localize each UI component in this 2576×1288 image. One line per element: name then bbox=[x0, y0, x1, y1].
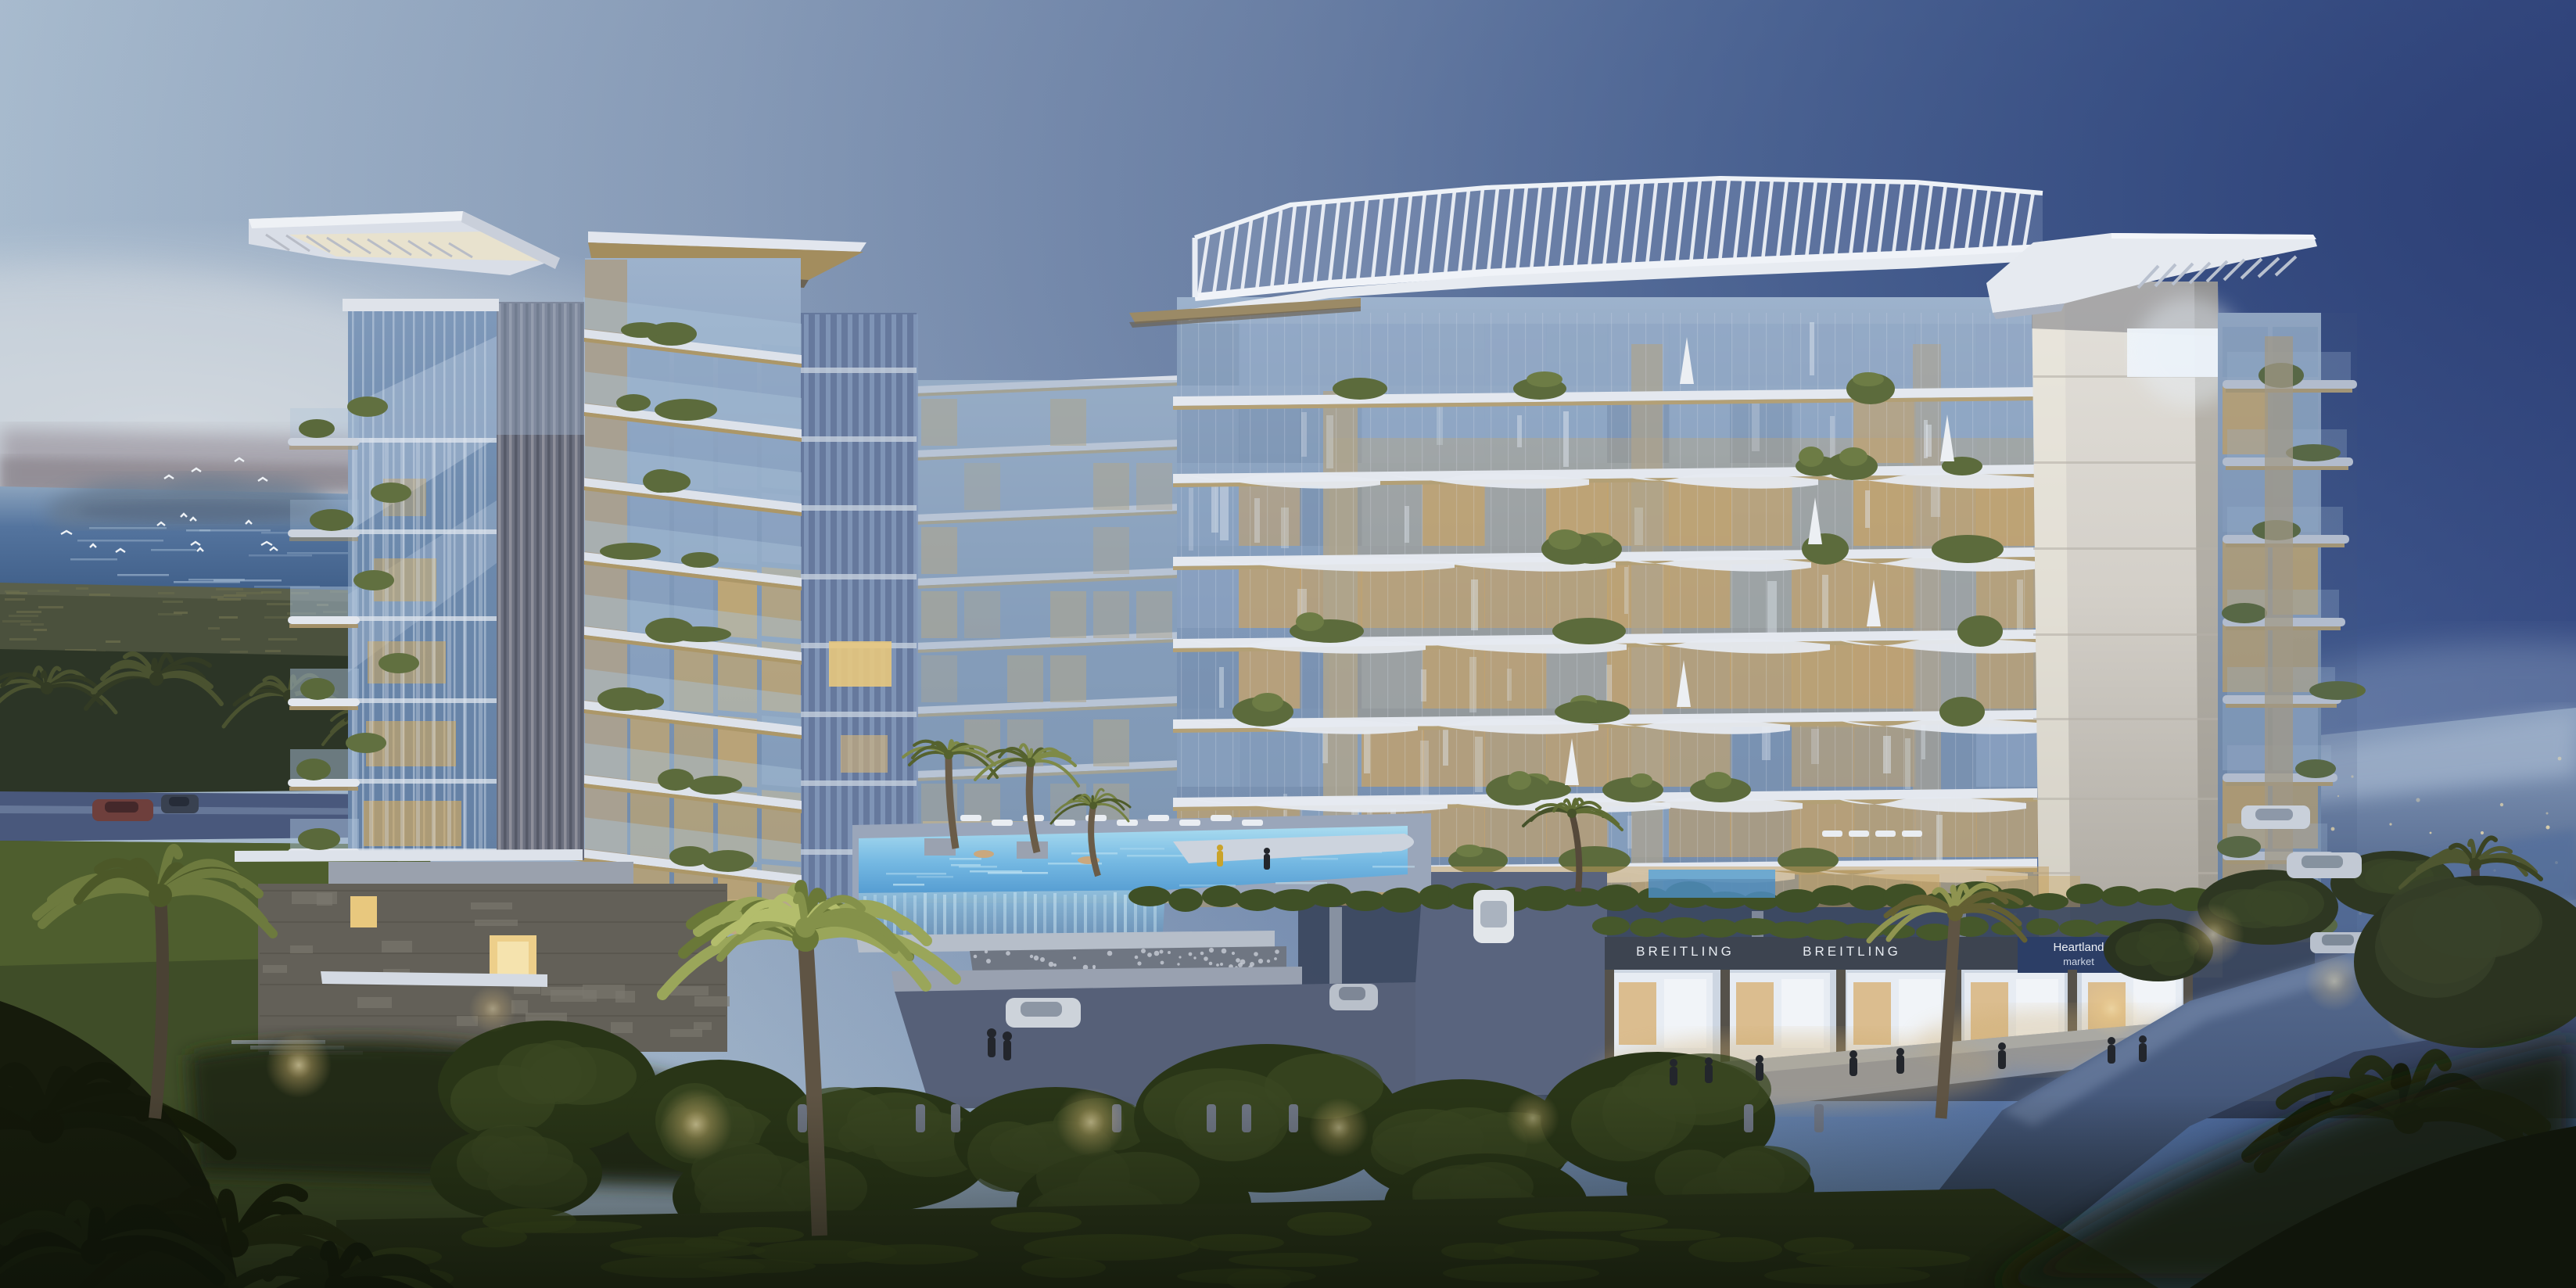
svg-text:Heartland: Heartland bbox=[2053, 941, 2104, 954]
svg-text:market: market bbox=[2063, 956, 2094, 967]
svg-text:BREITLING: BREITLING bbox=[1803, 944, 1901, 959]
svg-text:BREITLING: BREITLING bbox=[1636, 944, 1735, 959]
